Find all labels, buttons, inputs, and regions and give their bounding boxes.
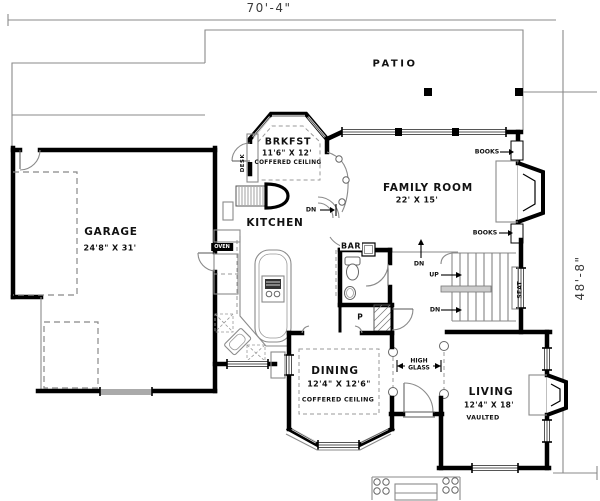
living-fireplace [529,375,566,415]
room-label-family: FAMILY ROOM [383,182,473,194]
porch-columns [374,478,458,494]
living-ceiling-note: VAULTED [466,415,499,422]
porch [372,477,460,500]
dimension-right: 48'-8" [573,255,587,300]
colonnade [318,152,349,218]
oven-label: OVEN [211,243,233,251]
family-size: 22' X 15' [396,196,439,205]
garage-walls [13,148,215,396]
seat-label: SEAT [517,281,524,298]
stair-arrows [418,239,462,313]
up-label: UP [429,272,439,279]
garage-size: 24'8" X 31' [83,244,136,253]
garage-door-window [100,387,152,396]
family-fireplace [496,161,543,222]
stairs [418,239,526,332]
kitchen-window [227,359,268,369]
kitchen-island [255,250,291,342]
room-label-brkfst: BRKFST [265,137,312,148]
living-size: 12'4" X 18' [464,401,514,410]
patio-dn-arrow [320,204,336,216]
stair-rail [441,286,491,292]
brkfst-size: 11'6" X 12' [262,149,312,158]
counter-edge [240,236,288,346]
porch-steps [395,484,437,500]
breakfast-nook [223,114,327,220]
patio-post [424,88,432,96]
pantry-label: P [357,313,363,322]
room-label-garage: GARAGE [84,226,138,238]
cabinet-dashed [215,314,265,361]
room-label-kitchen: KITCHEN [246,217,303,229]
toilet [345,257,360,280]
room-label-living: LIVING [469,386,514,398]
books-arrows [499,149,514,236]
living-front-window [472,463,518,473]
room-label-dining: DINING [311,365,359,377]
book-niche-top [511,141,523,160]
powder-sink [345,287,356,300]
books-bottom-label: BOOKS [473,230,498,237]
room-label-bar: BAR [340,242,362,251]
dining-ceiling-note: COFFERED CEILING [302,397,374,404]
dn-stairs-label: DN [430,307,440,314]
front-door-swing [404,383,433,412]
dn-patio-label: DN [306,207,316,214]
closet-hatch [236,184,288,208]
books-top-label: BOOKS [475,149,500,156]
high-glass-label: HIGH GLASS [405,358,433,371]
dining-size: 12'4" X 12'6" [307,380,371,389]
dn-family-label: DN [414,261,424,268]
floor-plan: 70'-4" 48'-8" PATIO BRKFST 11'6" X 12' C… [0,0,600,501]
brkfst-ceiling-note: COFFERED CEILING [255,160,322,166]
range [262,276,284,302]
bar-powder [330,237,413,331]
room-label-patio: PATIO [373,59,418,70]
patio-post [515,88,523,96]
bay-window [318,440,359,450]
family-window-run [342,127,506,137]
dimension-top: 70'-4" [246,1,291,15]
desk-label: DESK [240,154,246,173]
bar-sink [362,243,375,256]
pantry-closet [340,305,413,331]
